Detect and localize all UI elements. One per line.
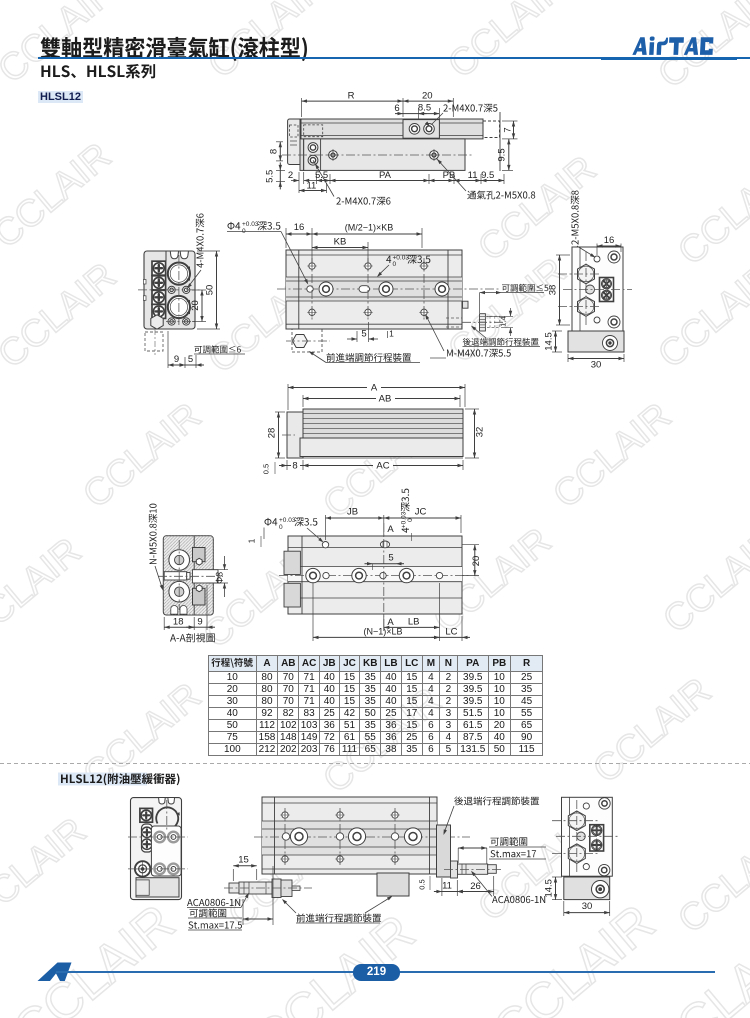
svg-text:KB: KB [334,237,347,248]
svg-text:0.5: 0.5 [262,464,271,474]
svg-text:CCLAIR: CCLAIR [650,255,750,377]
svg-text:11: 11 [306,181,316,192]
svg-text:LB: LB [408,617,420,628]
svg-text:0: 0 [393,261,397,268]
svg-text:16: 16 [604,235,615,246]
svg-text:CCLAIR: CCLAIR [242,903,425,1018]
svg-text:1: 1 [389,329,394,339]
svg-text:A: A [371,383,378,394]
svg-text:9.5: 9.5 [497,148,508,161]
svg-text:14.5: 14.5 [544,879,555,898]
svg-text:CCLAIR: CCLAIR [585,670,719,792]
svg-text:JC: JC [415,507,427,518]
svg-text:CCLAIR: CCLAIR [0,255,124,377]
svg-text:CCLAIR: CCLAIR [670,820,750,942]
svg-text:LC: LC [445,627,457,638]
svg-text:30: 30 [582,901,593,912]
svg-text:+0.03: +0.03 [242,221,259,228]
svg-text:32: 32 [475,427,486,438]
svg-text:8: 8 [269,149,280,154]
svg-text:CCLAIR: CCLAIR [440,0,574,87]
svg-text:CCLAIR: CCLAIR [650,0,750,97]
svg-text:AB: AB [379,394,392,405]
svg-text:11: 11 [442,881,452,892]
svg-text:CCLAIR: CCLAIR [0,530,89,652]
svg-text:PA: PA [379,170,392,181]
svg-text:6: 6 [394,103,399,114]
svg-text:A: A [387,524,394,535]
svg-text:8: 8 [292,461,297,472]
svg-text:CCLAIR: CCLAIR [0,135,119,257]
svg-text:38: 38 [548,285,559,296]
svg-text:9: 9 [174,354,179,365]
svg-text:15: 15 [238,855,249,866]
svg-text:20: 20 [190,300,201,311]
svg-text:AC: AC [376,461,389,472]
svg-text:CCLAIR: CCLAIR [2,893,185,1018]
svg-text:PB: PB [443,170,456,181]
svg-text:28: 28 [267,428,278,439]
svg-text:0.5: 0.5 [418,879,427,889]
svg-text:30: 30 [591,360,602,371]
svg-text:16: 16 [294,222,305,233]
svg-text:0: 0 [407,518,414,522]
svg-text:(N−1)×LB: (N−1)×LB [363,627,402,637]
svg-text:(M/2−1)×KB: (M/2−1)×KB [345,223,394,233]
svg-text:11: 11 [468,170,478,181]
svg-text:9.5: 9.5 [481,170,494,181]
svg-text:5.5: 5.5 [265,170,276,183]
svg-text:CCLAIR: CCLAIR [670,152,750,274]
svg-text:26: 26 [470,881,481,892]
svg-text:9: 9 [197,617,202,628]
svg-text:CCLAIR: CCLAIR [655,520,750,642]
svg-text:1.4: 1.4 [499,316,508,326]
svg-text:+0.03: +0.03 [279,517,296,524]
svg-text:R: R [348,91,355,102]
svg-text:20: 20 [471,556,482,567]
svg-text:CCLAIR: CCLAIR [0,810,94,932]
svg-text:JB: JB [347,507,358,518]
svg-text:14.5: 14.5 [544,332,555,351]
svg-text:1: 1 [247,538,257,543]
svg-text:0: 0 [279,524,283,531]
svg-text:50: 50 [205,285,216,296]
svg-text:CCLAIR: CCLAIR [75,395,209,517]
svg-text:5: 5 [388,553,393,564]
svg-text:2: 2 [288,170,293,181]
svg-text:8.5: 8.5 [418,103,431,114]
svg-text:18: 18 [173,617,184,628]
svg-text:5: 5 [361,329,366,340]
svg-text:5: 5 [188,354,193,365]
svg-text:7: 7 [503,127,514,132]
svg-text:CCLAIR: CCLAIR [545,395,679,517]
svg-text:20: 20 [422,91,433,102]
